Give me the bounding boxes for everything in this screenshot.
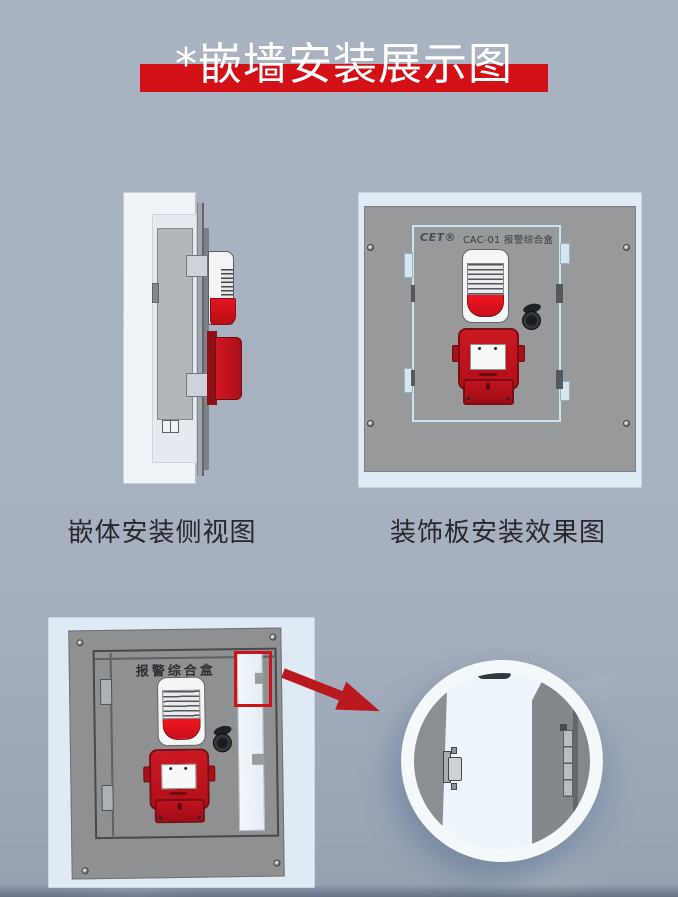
manual-call-point-icon <box>215 337 242 400</box>
buzzer-body <box>522 311 541 330</box>
call-point-text-mark <box>170 792 187 795</box>
call-point-led <box>184 767 187 770</box>
flap-screw <box>507 397 510 400</box>
hinge-icon <box>556 284 563 303</box>
call-point-text-mark <box>479 373 497 376</box>
mounting-clip <box>560 243 570 264</box>
call-point-glass <box>470 344 506 370</box>
screw-icon <box>76 639 83 646</box>
lens-ring <box>401 660 603 862</box>
hinge-icon <box>556 370 563 389</box>
caption-side-view: 嵌体安装侧视图 <box>52 512 272 549</box>
hinge-icon <box>411 370 415 386</box>
mounting-clip <box>186 255 208 277</box>
screw-icon <box>273 860 280 867</box>
decorative-plate-edge <box>197 203 204 476</box>
flap-screw <box>159 816 162 819</box>
call-point-led <box>169 767 172 770</box>
call-point-glass <box>161 764 196 789</box>
model-label: CAC-01 报警综合盒 <box>463 232 573 246</box>
caption-front-view: 装饰板安装效果图 <box>388 512 608 549</box>
box-handle <box>152 283 159 303</box>
strip-notch <box>252 754 264 765</box>
mounting-clip <box>186 373 208 397</box>
sounder-grille <box>162 690 200 720</box>
flap-keyhole <box>486 383 490 390</box>
call-point-led <box>494 347 497 350</box>
terminal-block <box>170 420 179 433</box>
flap-screw <box>198 816 201 819</box>
screw-icon <box>82 867 89 874</box>
page-title: *嵌墙安装展示图 <box>125 40 563 92</box>
hinge-icon <box>411 285 415 302</box>
mounting-clip <box>404 253 413 278</box>
sounder-grille <box>467 263 504 295</box>
hinge-icon <box>101 785 113 811</box>
screw-icon <box>623 420 630 427</box>
highlight-box <box>234 651 272 707</box>
sounder-red-dome-side <box>210 298 236 325</box>
sounder-ribs <box>221 269 233 301</box>
call-point-led <box>478 347 481 350</box>
magnifier-lens <box>401 660 603 862</box>
hinge-icon <box>100 679 112 705</box>
red-arrow-icon <box>270 640 410 735</box>
flap-screw <box>467 397 470 400</box>
flap-keyhole <box>178 803 182 810</box>
screw-icon <box>367 420 374 427</box>
poster-canvas: *嵌墙安装展示图 CET® <box>0 0 678 897</box>
screw-icon <box>367 244 374 251</box>
brand-logo: CET® <box>420 231 462 245</box>
screw-icon <box>623 244 630 251</box>
